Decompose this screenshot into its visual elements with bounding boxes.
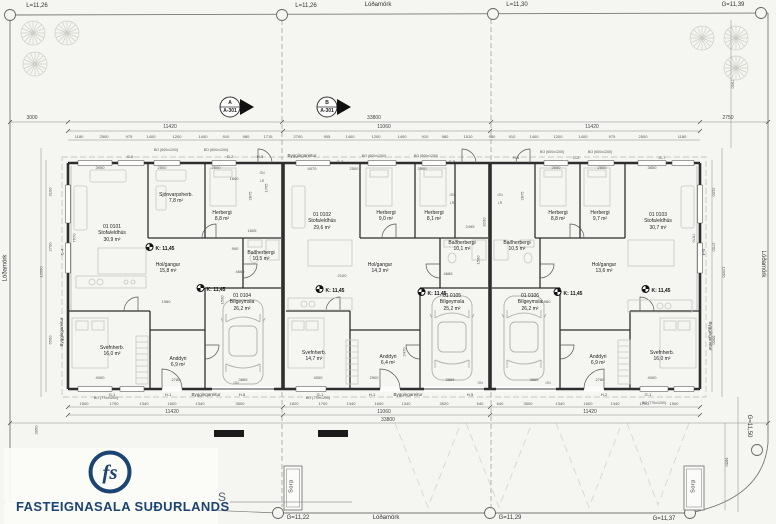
walkway-markers xyxy=(214,430,348,437)
lot-boundary xyxy=(5,8,769,519)
windows xyxy=(66,161,703,392)
driveway-markings xyxy=(395,423,689,507)
building-walls xyxy=(68,163,700,389)
agency-name: FASTEIGNASALA SUÐURLANDS xyxy=(16,499,230,514)
fs-logo-icon: fs xyxy=(86,448,134,496)
building-limit-line xyxy=(62,157,706,397)
sorp-enclosures xyxy=(284,466,704,510)
garage-cars xyxy=(221,296,546,384)
svg-text:fs: fs xyxy=(102,460,117,484)
trees xyxy=(21,21,748,80)
floorplan-drawing xyxy=(0,0,776,524)
floorplan-sheet: L=11,26L=11,26LóðamörkL=11,30G=11,39Lóða… xyxy=(0,0,776,524)
doors xyxy=(124,149,654,389)
agency-watermark: fs FASTEIGNASALA SUÐURLANDS xyxy=(4,448,218,524)
section-arrow-icon xyxy=(337,99,351,115)
section-markers xyxy=(220,97,351,117)
section-arrow-icon xyxy=(240,99,254,115)
furniture xyxy=(72,168,696,384)
